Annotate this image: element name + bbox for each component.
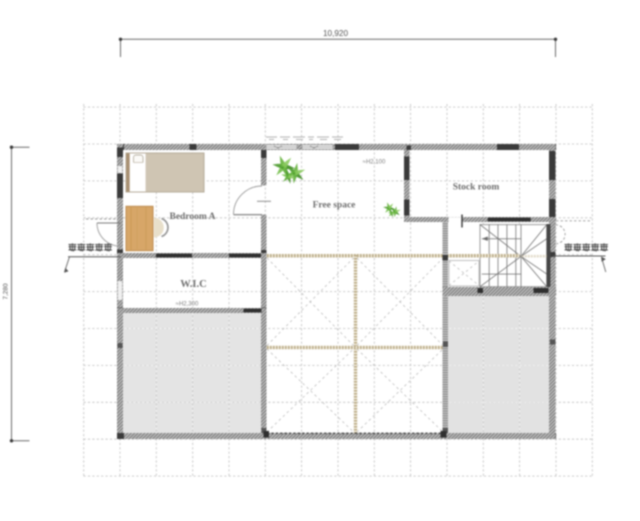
svg-text:≈H2,300: ≈H2,300 [176,302,199,308]
svg-text:7,280: 7,280 [3,283,10,300]
svg-text:10,920: 10,920 [323,29,348,38]
svg-text:Stock room: Stock room [453,183,500,193]
svg-text:Free space: Free space [313,201,356,211]
svg-text:Bedroom A: Bedroom A [169,212,215,222]
svg-text:W.I.C: W.I.C [180,279,206,290]
svg-text:≈H2,100: ≈H2,100 [363,160,386,166]
